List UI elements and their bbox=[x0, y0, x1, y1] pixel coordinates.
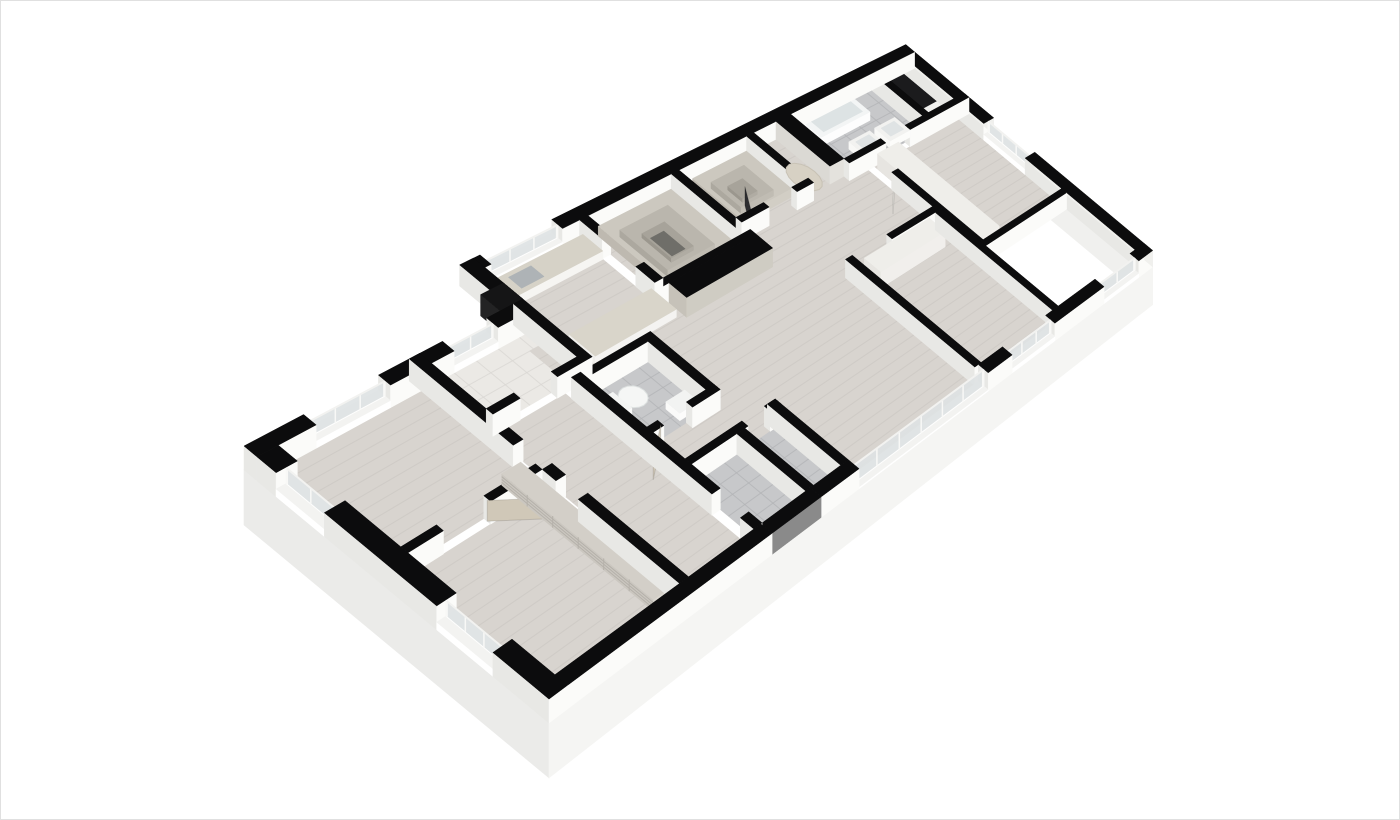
floor-plan-canvas bbox=[1, 1, 1400, 820]
floor-plan-page: 3D isometric apartment floor plan render bbox=[0, 0, 1400, 820]
